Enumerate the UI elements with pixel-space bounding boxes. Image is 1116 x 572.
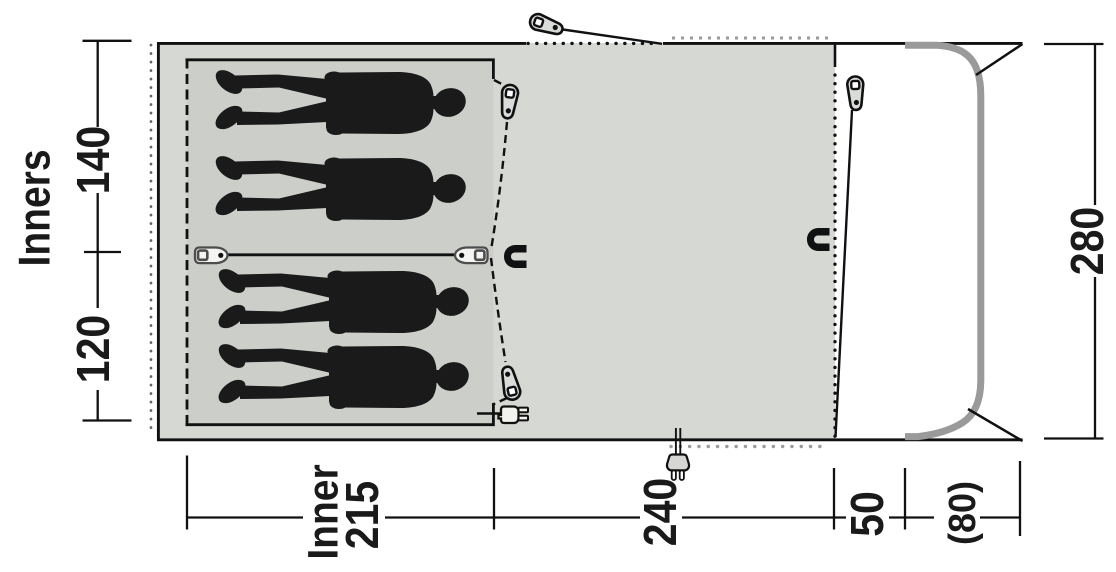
- svg-text:140: 140: [69, 126, 120, 194]
- svg-text:120: 120: [69, 315, 120, 383]
- svg-text:(80): (80): [941, 481, 983, 545]
- svg-text:240: 240: [636, 478, 687, 546]
- svg-text:215: 215: [338, 481, 389, 549]
- svg-text:280: 280: [1063, 207, 1114, 275]
- svg-text:Inners: Inners: [9, 149, 59, 266]
- svg-text:50: 50: [843, 491, 894, 537]
